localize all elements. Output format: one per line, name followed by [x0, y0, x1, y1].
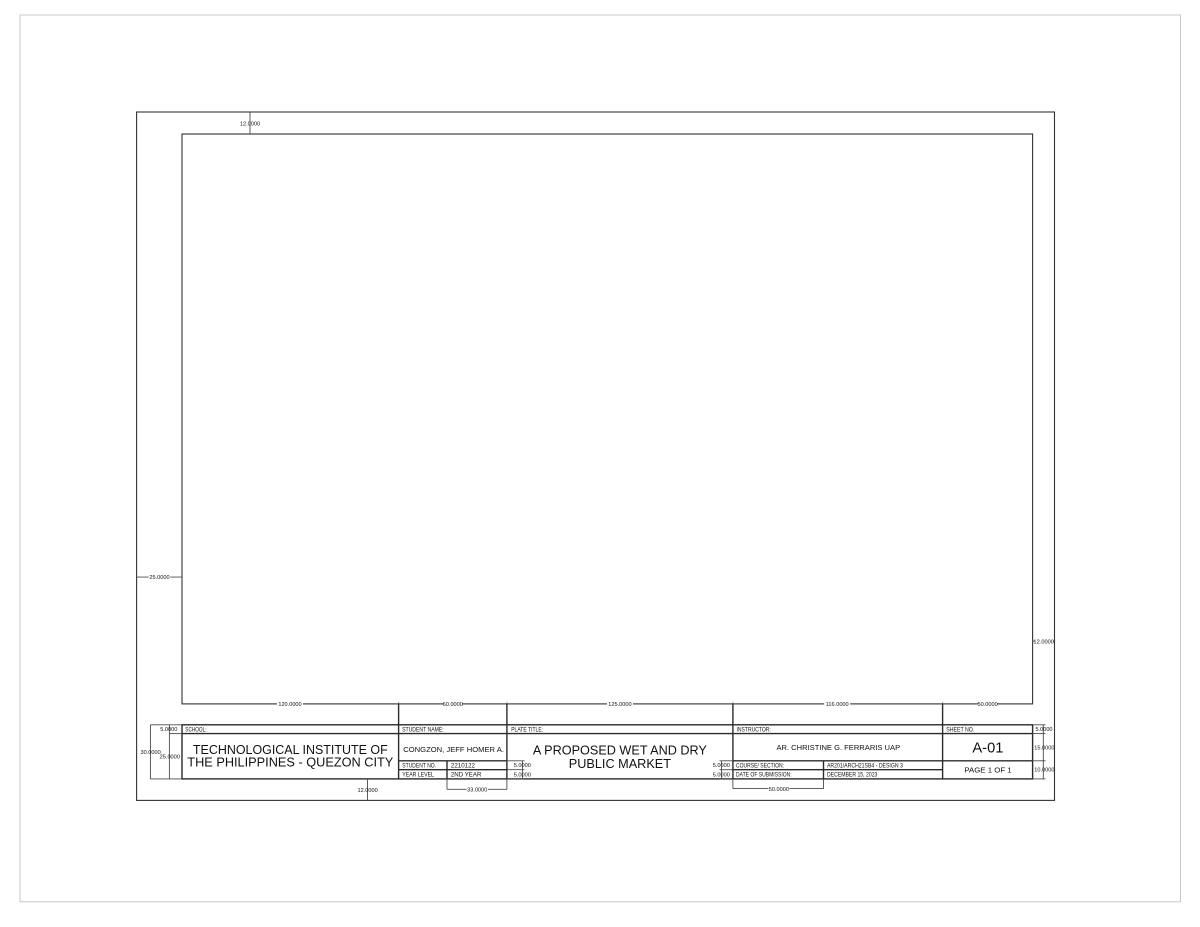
svg-text:5.0000: 5.0000: [514, 773, 531, 779]
svg-text:30.0000: 30.0000: [140, 750, 160, 756]
svg-text:STUDENT NAME:: STUDENT NAME:: [402, 727, 444, 734]
svg-text:SCHOOL:: SCHOOL:: [185, 727, 206, 734]
svg-text:5.0000: 5.0000: [713, 773, 730, 779]
svg-text:5.0000: 5.0000: [1035, 727, 1052, 733]
svg-text:DECEMBER 15, 2023: DECEMBER 15, 2023: [827, 772, 878, 779]
svg-text:60.0000: 60.0000: [443, 702, 463, 708]
svg-text:THE PHILIPPINES - QUEZON CITY: THE PHILIPPINES - QUEZON CITY: [187, 755, 394, 769]
svg-text:AR201/ARCH21SB4 - DESIGN 3: AR201/ARCH21SB4 - DESIGN 3: [827, 763, 903, 770]
svg-text:5.0000: 5.0000: [514, 763, 531, 769]
svg-text:PUBLIC MARKET: PUBLIC MARKET: [569, 757, 672, 771]
svg-text:15.0000: 15.0000: [1034, 745, 1054, 751]
svg-text:CONGZON, JEFF HOMER A.: CONGZON, JEFF HOMER A.: [403, 745, 504, 754]
svg-text:YEAR LEVEL: YEAR LEVEL: [402, 772, 434, 779]
svg-text:STUDENT NO.: STUDENT NO.: [402, 763, 436, 770]
svg-text:120.0000: 120.0000: [278, 702, 301, 708]
svg-text:2210122: 2210122: [451, 763, 476, 770]
svg-text:12.0000: 12.0000: [1033, 639, 1054, 645]
svg-text:116.0000: 116.0000: [826, 702, 849, 708]
svg-text:2ND YEAR: 2ND YEAR: [451, 772, 482, 779]
svg-text:125.0000: 125.0000: [608, 702, 631, 708]
svg-text:PAGE 1 OF 1: PAGE 1 OF 1: [964, 766, 1011, 775]
svg-text:25.0000: 25.0000: [160, 755, 180, 761]
svg-text:10.0000: 10.0000: [1034, 767, 1054, 773]
svg-text:25.0000: 25.0000: [149, 575, 169, 581]
svg-text:33.0000: 33.0000: [467, 787, 487, 793]
svg-text:SHEET NO.: SHEET NO.: [946, 727, 974, 734]
svg-text:50.0000: 50.0000: [977, 702, 997, 708]
svg-text:A PROPOSED WET AND DRY: A PROPOSED WET AND DRY: [533, 744, 708, 758]
svg-text:5.0000: 5.0000: [713, 763, 730, 769]
svg-text:INSTRUCTOR:: INSTRUCTOR:: [737, 727, 771, 734]
svg-text:AR. CHRISTINE G. FERRARIS UAP: AR. CHRISTINE G. FERRARIS UAP: [776, 743, 900, 752]
svg-text:A-01: A-01: [972, 740, 1003, 757]
svg-text:12.0000: 12.0000: [240, 122, 260, 128]
svg-text:PLATE TITLE:: PLATE TITLE:: [511, 727, 543, 734]
svg-text:5.0000: 5.0000: [160, 727, 177, 733]
svg-text:DATE OF SUBMISSION:: DATE OF SUBMISSION:: [736, 772, 792, 779]
svg-text:12.0000: 12.0000: [357, 788, 377, 794]
svg-text:COURSE/ SECTION:: COURSE/ SECTION:: [736, 763, 784, 770]
svg-text:50.0000: 50.0000: [769, 787, 789, 793]
